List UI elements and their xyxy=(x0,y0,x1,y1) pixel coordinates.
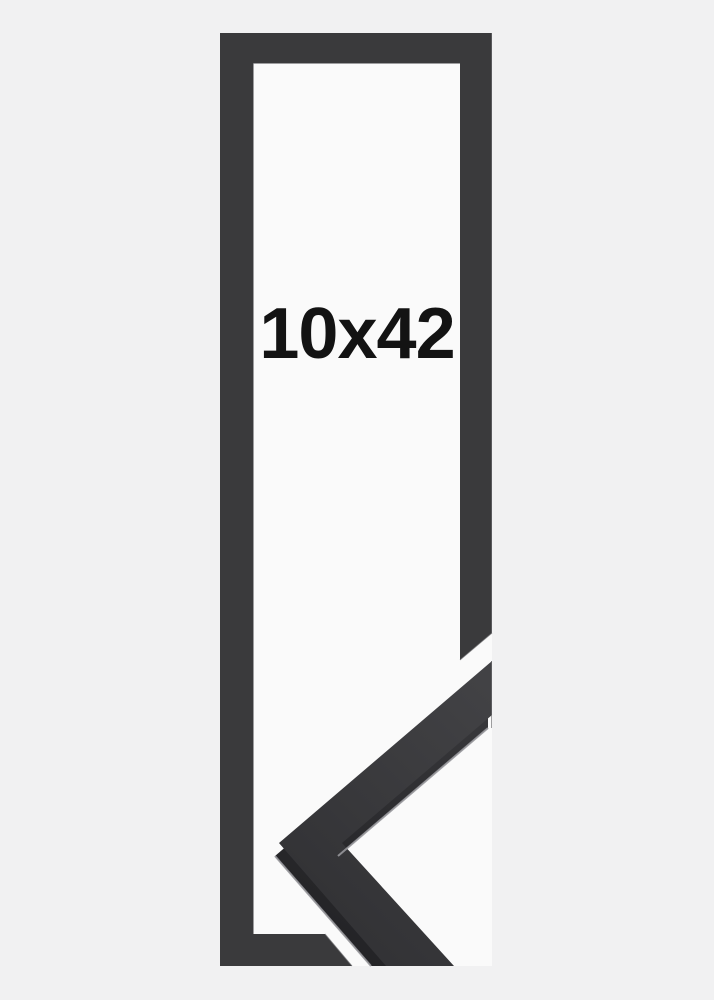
product-photo: 10x42 xyxy=(0,0,714,1000)
size-label: 10x42 xyxy=(0,298,714,370)
frame-graphic xyxy=(0,0,714,1000)
